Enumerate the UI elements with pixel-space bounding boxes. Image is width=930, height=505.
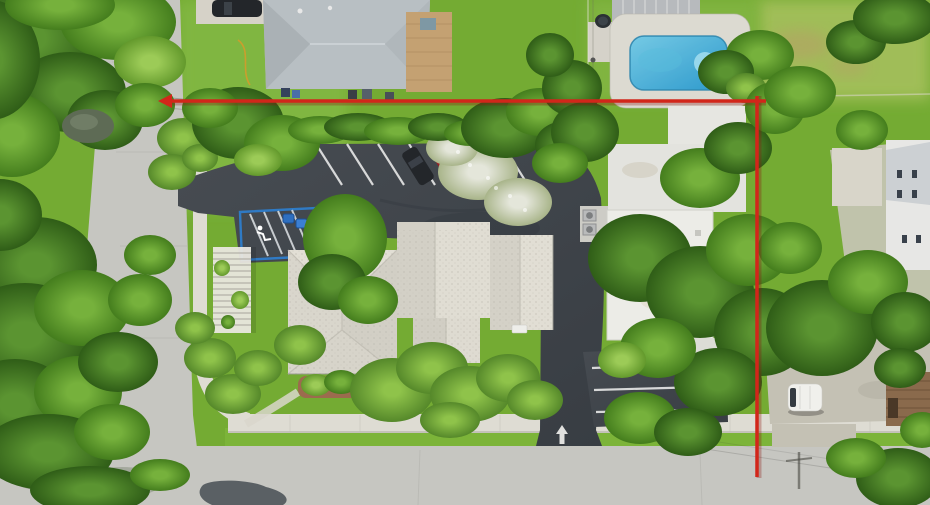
shed-opening (888, 398, 898, 418)
roof-vent (328, 6, 332, 10)
yard-sign (512, 325, 527, 333)
rock-outcrop (62, 109, 114, 143)
suv-windshield (224, 2, 232, 15)
aerial-photo (0, 0, 930, 505)
aerial-photo-canvas (0, 0, 930, 505)
roof-vent (695, 230, 701, 236)
van-windshield (790, 388, 796, 407)
utility-pole (591, 58, 596, 63)
parked-suv (212, 0, 262, 17)
east-edge-house (886, 140, 930, 270)
blue-bin (283, 214, 294, 223)
white-van (788, 384, 824, 416)
pergola (213, 247, 256, 333)
neighbor-walkway (832, 148, 882, 206)
roof-vent (298, 9, 303, 14)
hot-tub (420, 18, 436, 30)
handicap-symbol (258, 226, 263, 231)
house-roof-slope (886, 142, 930, 205)
